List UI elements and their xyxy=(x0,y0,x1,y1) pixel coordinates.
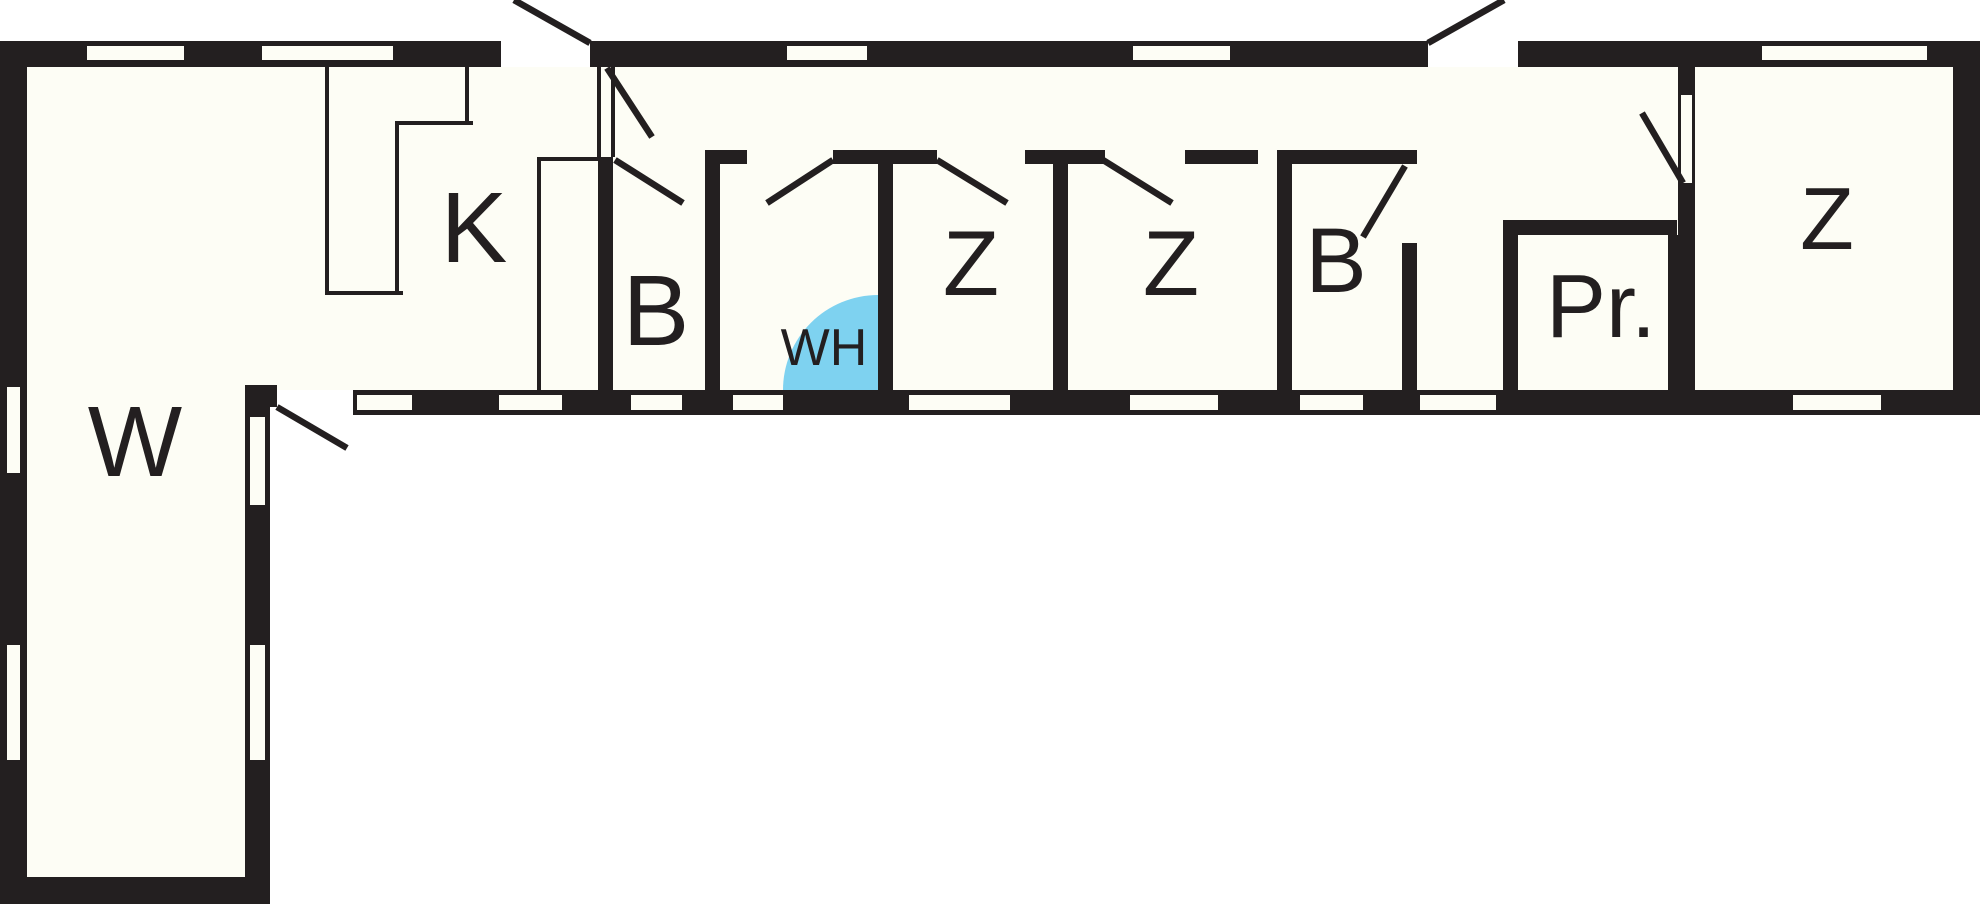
room-label-bedroom-2: Z xyxy=(1143,218,1199,310)
floor-plan: W K B WH Z Z B Pr. Z xyxy=(0,0,1980,904)
door-swing xyxy=(607,68,652,137)
door-swings xyxy=(0,0,1980,904)
room-label-bathroom-1: B xyxy=(623,261,690,361)
room-label-pantry: Pr. xyxy=(1546,262,1656,352)
door-swing xyxy=(1428,0,1504,43)
door-swing xyxy=(615,160,683,203)
door-swing xyxy=(1103,160,1172,203)
door-swing xyxy=(277,407,347,448)
door-swing xyxy=(767,160,833,203)
door-swing xyxy=(514,0,590,43)
door-swing xyxy=(1363,166,1405,237)
room-label-living-room: W xyxy=(88,392,182,492)
room-label-shower-area: WH xyxy=(781,322,868,374)
door-swing xyxy=(937,160,1007,203)
room-label-bedroom-1: Z xyxy=(943,218,999,310)
door-swing xyxy=(1642,113,1683,183)
room-label-bedroom-3: Z xyxy=(1800,175,1854,263)
room-label-bathroom-2: B xyxy=(1305,215,1366,307)
room-label-kitchen: K xyxy=(441,178,508,278)
